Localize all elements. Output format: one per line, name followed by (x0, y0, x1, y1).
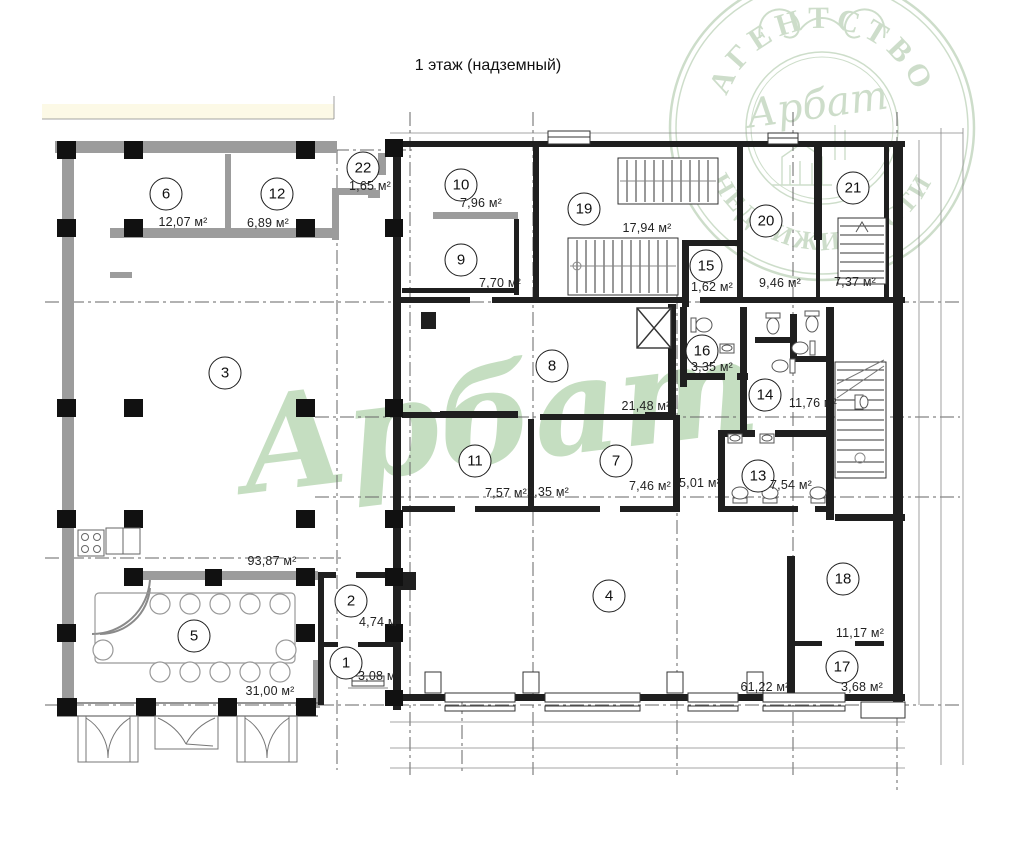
room-4-area: 61,22 м² (740, 680, 789, 694)
page-title: 1 этаж (надземный) (415, 57, 561, 75)
room-8-marker: 8 (536, 350, 569, 383)
extra-area-label: 2,35 м² (527, 485, 569, 499)
toilet-icon (792, 341, 815, 355)
room-8-area: 21,48 м² (621, 399, 670, 413)
floor-plan-drawing: АГЕНТСТВО НЕДВИЖИМОСТИ Арбат Арбат (0, 0, 1024, 854)
sink-icon (760, 434, 774, 443)
room-7-area: 7,46 м² (629, 479, 671, 493)
sink-icon (855, 395, 868, 409)
toilet-icon (810, 487, 826, 503)
room-6-area: 12,07 м² (158, 215, 207, 229)
room-14-area: 11,76 м² (789, 396, 837, 410)
room-11-area: 7,57 м² (485, 486, 527, 500)
sink-icon (720, 344, 734, 353)
room-13-area: 7,54 м² (770, 478, 812, 492)
room-7-marker: 7 (600, 445, 633, 478)
room-21-number: 21 (837, 172, 870, 205)
floor-plan: АГЕНТСТВО НЕДВИЖИМОСТИ Арбат Арбат (0, 0, 1024, 854)
room-5-marker: 5 (178, 620, 211, 653)
room-20-area: 9,46 м² (759, 276, 801, 290)
room-6-marker: 6 (150, 178, 183, 211)
room-20-marker: 20 (750, 205, 783, 238)
room-2-area: 4,74 м² (359, 615, 401, 629)
room-16-area: 3,35 м² (691, 360, 733, 374)
room-10-area: 7,96 м² (460, 196, 502, 210)
room-4-marker: 4 (593, 580, 626, 613)
room-21-area: 7,37 м² (834, 275, 876, 289)
room-15-marker: 15 (690, 250, 723, 283)
room-18-number: 18 (827, 563, 860, 596)
room-6-number: 6 (150, 178, 183, 211)
room-3-number: 3 (209, 357, 242, 390)
room-18-area: 11,17 м² (836, 626, 884, 640)
toilet-icon (691, 318, 712, 332)
room-14-number: 14 (749, 379, 782, 412)
room-18-marker: 18 (827, 563, 860, 596)
room-3-area: 93,87 м² (247, 554, 296, 568)
room-5-number: 5 (178, 620, 211, 653)
room-9-number: 9 (445, 244, 478, 277)
room-14-marker: 14 (749, 379, 782, 412)
room-9-area: 7,70 м² (479, 276, 521, 290)
room-9-marker: 9 (445, 244, 478, 277)
toilet-icon (772, 359, 795, 373)
stamp-script-text: Арбат (741, 72, 891, 138)
room-11-marker: 11 (459, 445, 492, 478)
room-3-marker: 3 (209, 357, 242, 390)
room-21-marker: 21 (837, 172, 870, 205)
room-5-area: 31,00 м² (245, 684, 294, 698)
room-15-area: 1,62 м² (691, 280, 733, 294)
room-17-marker: 17 (826, 651, 859, 684)
room-7-number: 7 (600, 445, 633, 478)
kitchen-counter (78, 528, 140, 556)
elevator-shaft (637, 308, 671, 348)
room-17-area: 3,68 м² (841, 680, 883, 694)
extra-area-label: 5,01 м² (679, 476, 721, 490)
room-20-number: 20 (750, 205, 783, 238)
room-1-area: 3,08 м² (358, 669, 400, 683)
room-17-number: 17 (826, 651, 859, 684)
room-22-area: 1,65 м² (349, 179, 391, 193)
toilet-icon (766, 313, 780, 334)
room-2-marker: 2 (335, 585, 368, 618)
bay-windows (78, 716, 297, 762)
room-15-number: 15 (690, 250, 723, 283)
room-19-area: 17,94 м² (622, 221, 671, 235)
sink-icon (728, 434, 742, 443)
room-4-number: 4 (593, 580, 626, 613)
room-12-number: 12 (261, 178, 294, 211)
room-12-area: 6,89 м² (247, 216, 289, 230)
room-19-marker: 19 (568, 193, 601, 226)
room-2-number: 2 (335, 585, 368, 618)
room-19-number: 19 (568, 193, 601, 226)
room-8-number: 8 (536, 350, 569, 383)
room-12-marker: 12 (261, 178, 294, 211)
room-11-number: 11 (459, 445, 492, 478)
toilet-icon (805, 311, 819, 332)
